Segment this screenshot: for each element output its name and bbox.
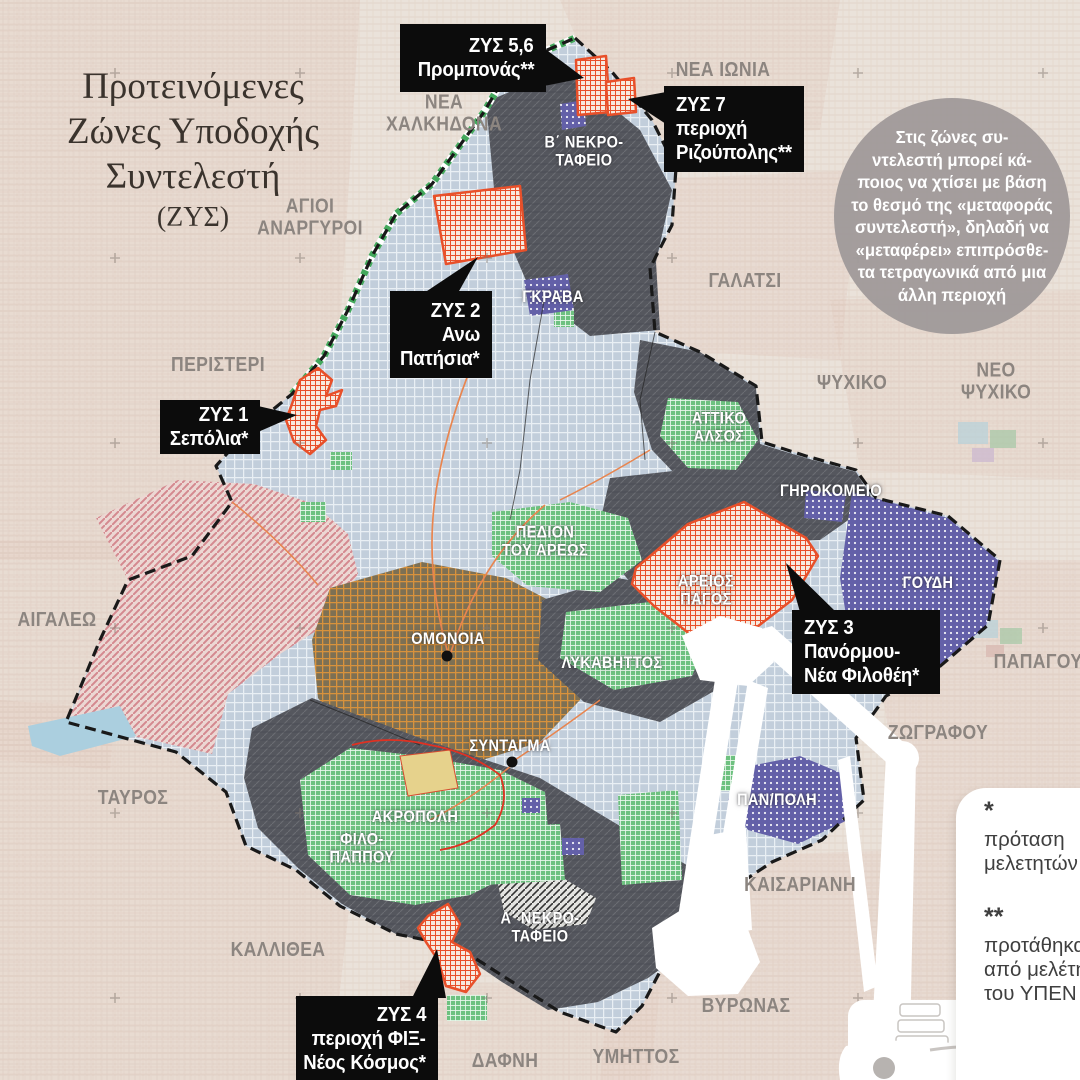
circle-line-6: «μεταφέρει» επιπρόσθε- <box>851 239 1052 262</box>
circle-line-4: το θεσμό της «μεταφοράς <box>851 194 1052 217</box>
title-line-3: Συντελεστή <box>28 154 358 199</box>
footnote-1-line-2: μελετητών <box>984 852 1080 876</box>
footnote-symbol-1: * <box>984 800 1080 822</box>
zone-green-small-5 <box>447 995 487 1021</box>
zone-green-small-2 <box>330 452 352 470</box>
zone-green-small-1 <box>554 310 574 327</box>
footnote-items: *πρότασημελετητών**προτάθηκαναπό μελέτητ… <box>984 800 1080 1006</box>
title-line-2: Ζώνες Υποδοχής <box>28 109 358 154</box>
title-line-1: Προτεινόμενες <box>28 64 358 109</box>
page-title: ΠροτεινόμενεςΖώνες ΥποδοχήςΣυντελεστή (Ζ… <box>28 64 358 236</box>
footnote-panel: *πρότασημελετητών**προτάθηκαναπό μελέτητ… <box>956 788 1080 1080</box>
zys-zone-2 <box>434 186 526 264</box>
infographic-canvas: ΝΕΑ ΙΩΝΙΑΝΕΑ ΧΑΛΚΗΔΟΝΑΒ΄ ΝΕΚΡΟ- ΤΑΦΕΙΟΑΓ… <box>0 0 1080 1080</box>
zone-green-zappeio <box>478 824 565 885</box>
circle-line-7: τα τετραγωνικά από μια <box>851 261 1052 284</box>
footnote-item-1: *πρότασημελετητών <box>984 800 1080 876</box>
circle-line-5: συντελεστή», δηλαδή να <box>851 216 1052 239</box>
footnote-symbol-2: ** <box>984 906 1080 928</box>
page-title-lines: ΠροτεινόμενεςΖώνες ΥποδοχήςΣυντελεστή <box>28 64 358 199</box>
footnote-2-line-2: από μελέτη <box>984 958 1080 982</box>
zys-zone-7 <box>606 78 636 115</box>
zone-purple-small-se1 <box>522 798 540 813</box>
zone-green-small-3 <box>300 502 326 522</box>
footnote-1-line-1: πρόταση <box>984 828 1080 852</box>
annotation-circle-text: Στις ζώνες συ-ντελεστή μπορεί κά-ποιος ν… <box>851 126 1052 306</box>
zone-green-southeast <box>618 790 682 885</box>
zone-plaka-yellow <box>400 750 458 796</box>
zone-purple-girokomeio <box>804 490 846 522</box>
circle-line-8: άλλη περιοχή <box>851 284 1052 307</box>
zone-purple-small-se2 <box>562 838 584 855</box>
footnote-2-line-3: του ΥΠΕΝ <box>984 982 1080 1006</box>
annotation-circle: Στις ζώνες συ-ντελεστή μπορεί κά-ποιος ν… <box>834 98 1070 334</box>
circle-line-3: ποιος να χτίσει με βάση <box>851 171 1052 194</box>
zone-purple-grava <box>524 274 574 316</box>
circle-line-1: Στις ζώνες συ- <box>851 126 1052 149</box>
footnote-item-2: **προτάθηκαναπό μελέτητου ΥΠΕΝ <box>984 906 1080 1006</box>
page-title-subtitle: (ΖΥΣ) <box>28 200 358 236</box>
footnote-2-line-1: προτάθηκαν <box>984 934 1080 958</box>
zys-zone-5-6 <box>576 56 610 115</box>
circle-line-2: ντελεστή μπορεί κά- <box>851 149 1052 172</box>
